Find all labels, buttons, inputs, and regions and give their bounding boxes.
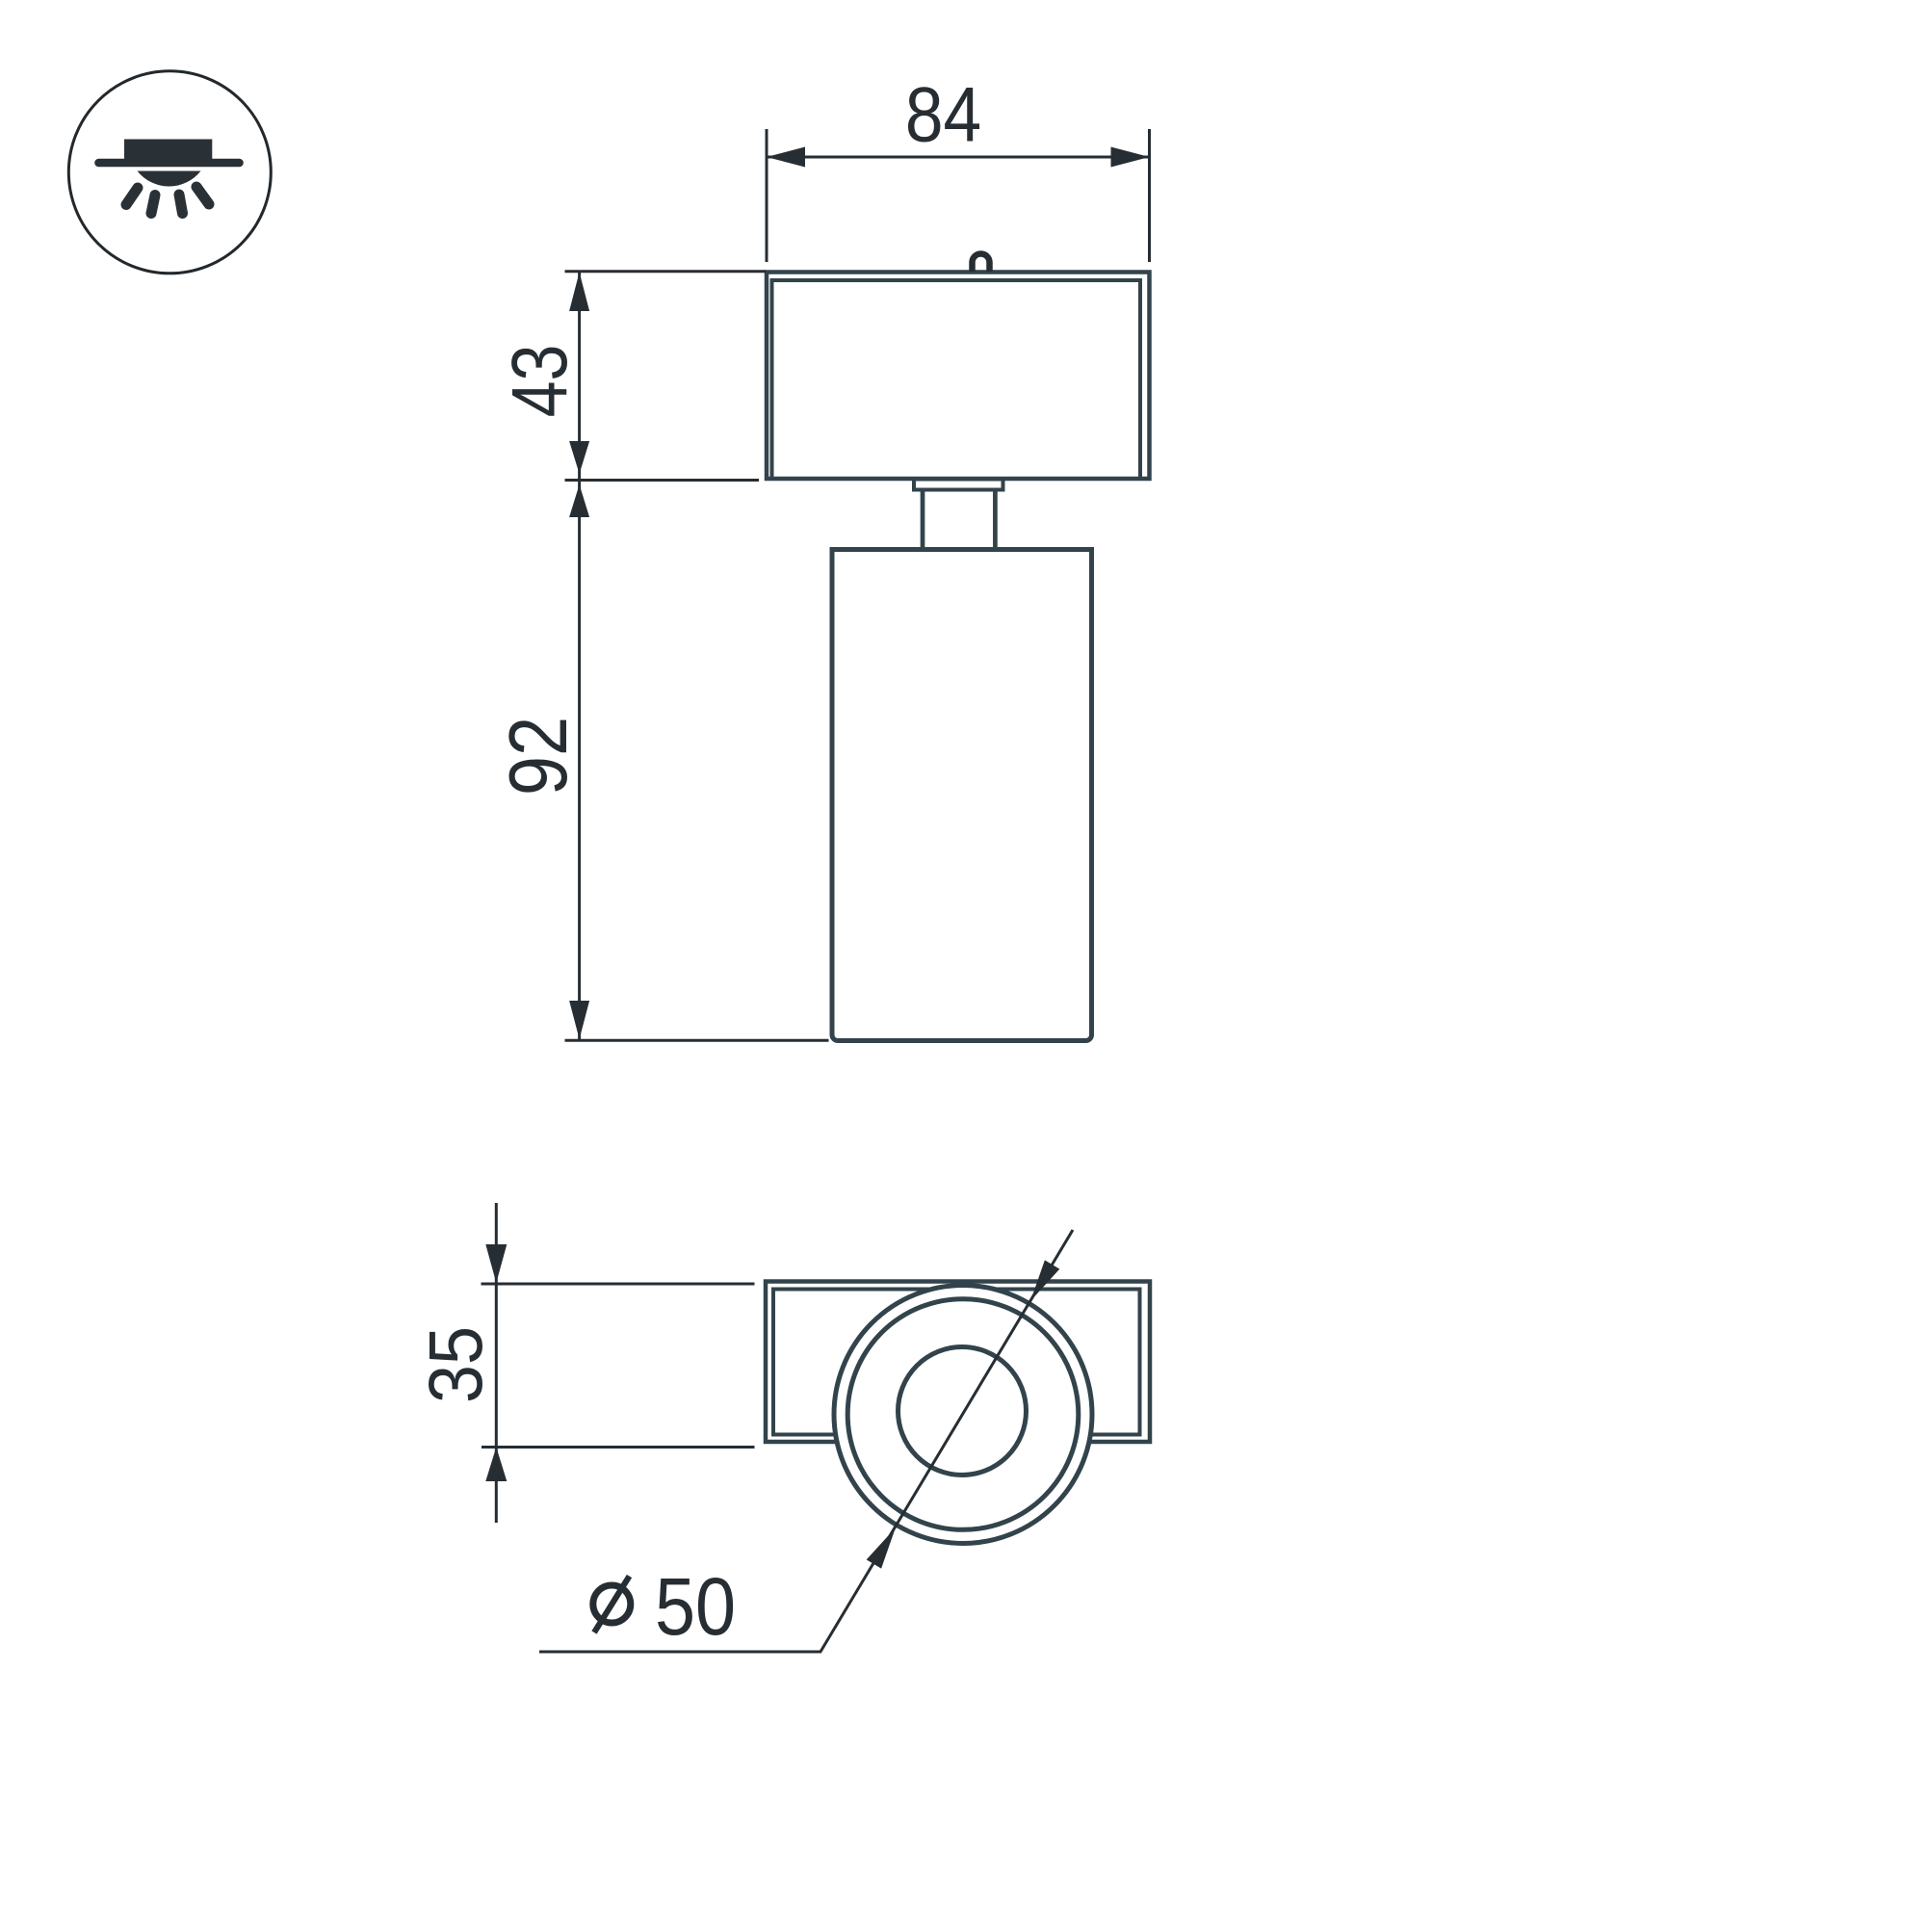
svg-text:92: 92	[492, 717, 584, 796]
svg-text:50: 50	[655, 1561, 736, 1652]
svg-text:43: 43	[495, 345, 583, 418]
svg-text:84: 84	[905, 71, 981, 158]
svg-text:35: 35	[414, 1326, 499, 1403]
